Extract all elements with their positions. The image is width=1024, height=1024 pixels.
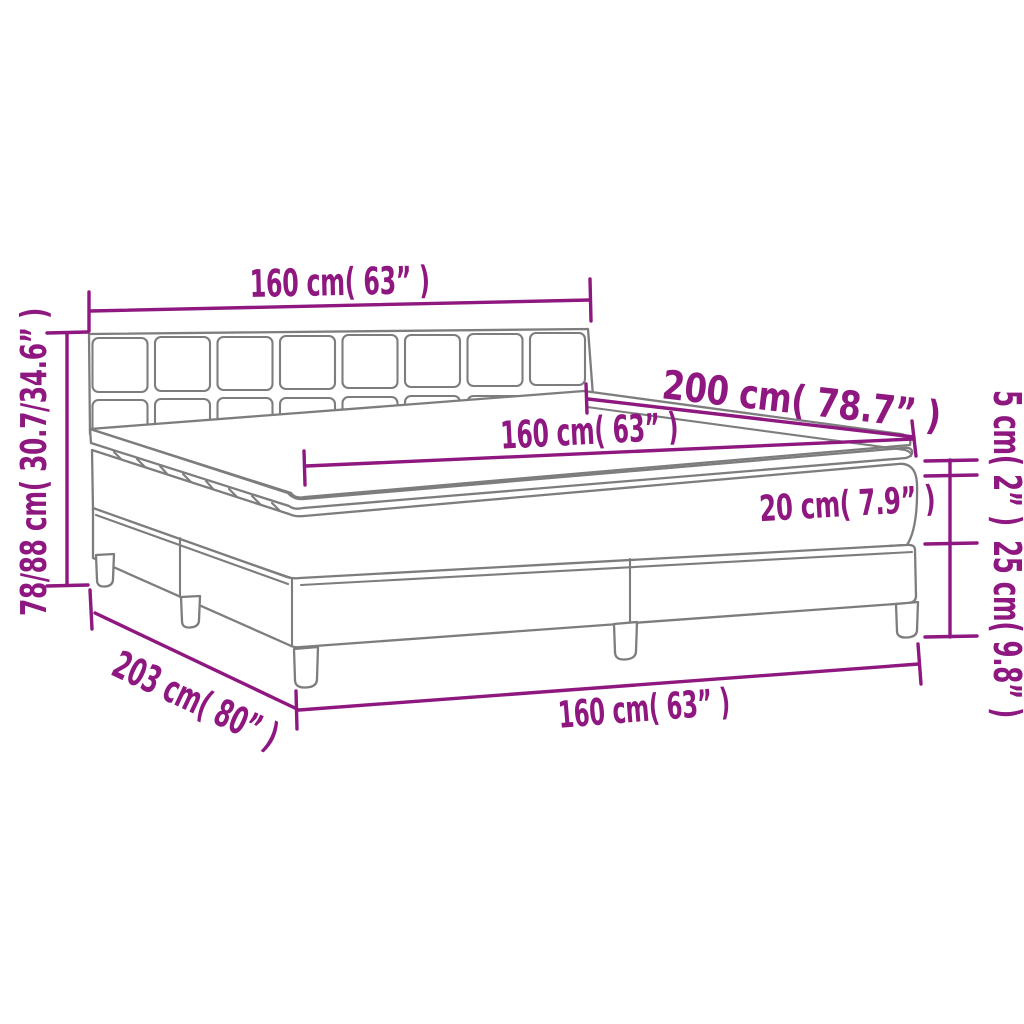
bed-leg bbox=[96, 554, 114, 587]
bed-dimension-diagram: 160 cm( 63” ) 200 cm( 78.7” ) 160 cm( 63… bbox=[0, 0, 1024, 1024]
headboard-tuft bbox=[343, 335, 398, 388]
dim-total-height: 78/88 cm( 30.7/34.6” ) bbox=[14, 308, 88, 616]
headboard-tuft bbox=[405, 335, 460, 387]
dimension-tick bbox=[925, 636, 977, 637]
dim-base-width: 160 cm( 63” ) bbox=[299, 644, 921, 737]
dimension-tick bbox=[90, 590, 92, 629]
dim-label-total-height: 78/88 cm( 30.7/34.6” ) bbox=[14, 308, 55, 616]
dimension-tick bbox=[304, 451, 305, 485]
dimension-tick bbox=[590, 279, 591, 321]
dim-label-topper-height: 5 cm( 2” ) bbox=[985, 390, 1024, 526]
diagram-canvas: 160 cm( 63” ) 200 cm( 78.7” ) 160 cm( 63… bbox=[0, 0, 1024, 1024]
bed-leg bbox=[896, 602, 918, 638]
headboard-tuft bbox=[218, 337, 273, 390]
bed-leg bbox=[181, 596, 200, 628]
bed-leg bbox=[614, 622, 637, 660]
bed-leg bbox=[294, 647, 318, 688]
headboard-tuft bbox=[93, 338, 148, 392]
dimension-tick bbox=[925, 460, 977, 461]
headboard-tuft bbox=[155, 337, 210, 391]
dimension-tick bbox=[296, 691, 297, 729]
dim-label-base-height: 25 cm( 9.8” ) bbox=[985, 540, 1024, 718]
dimension-tick bbox=[918, 644, 921, 684]
headboard-tuft bbox=[530, 333, 585, 385]
dim-label-headboard-width: 160 cm( 63” ) bbox=[249, 258, 430, 306]
dim-topper-and-base-height: 5 cm( 2” ) 25 cm( 9.8” ) bbox=[925, 390, 1024, 718]
dimension-tick bbox=[925, 543, 977, 544]
dim-headboard-width: 160 cm( 63” ) bbox=[89, 258, 591, 331]
headboard-tuft bbox=[280, 336, 335, 389]
headboard-tuft bbox=[468, 334, 523, 386]
dimension-tick bbox=[925, 475, 977, 476]
dim-label-mattress-width: 160 cm( 63” ) bbox=[499, 404, 679, 457]
